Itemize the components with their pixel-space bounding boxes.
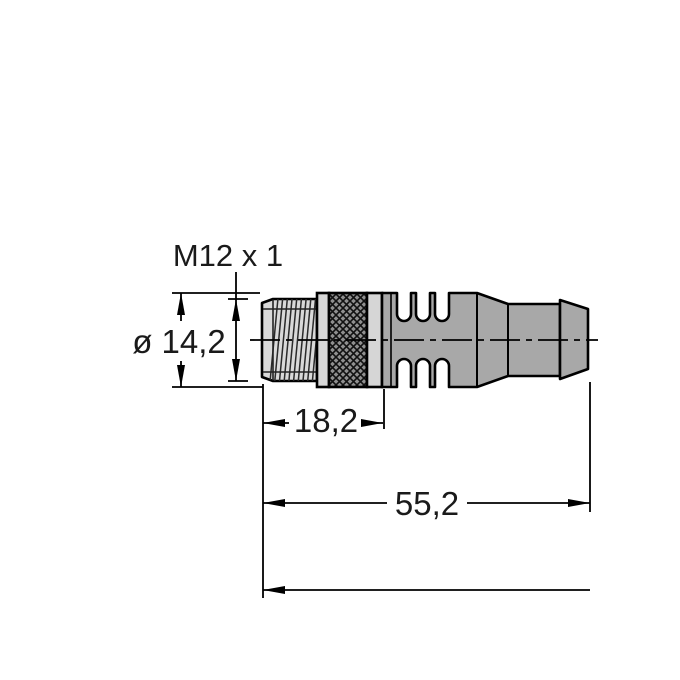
body-length-label: 55,2 (395, 485, 459, 522)
dia-arrow-up (177, 293, 185, 315)
thread-arrow-up (232, 299, 240, 321)
technical-drawing-page: M12 x 1 ø 14,2 18,2 55,2 (0, 0, 680, 680)
thread-length-label: 18,2 (294, 402, 358, 439)
len55-arrow-left (263, 499, 285, 507)
cable-arrow-left (263, 586, 285, 594)
len18-arrow-left (263, 419, 285, 427)
len18-arrow-right (361, 419, 383, 427)
connector-dimension-drawing: M12 x 1 ø 14,2 18,2 55,2 (0, 0, 680, 680)
diameter-label: ø 14,2 (132, 323, 226, 360)
thread-spec-label: M12 x 1 (173, 238, 283, 273)
len55-arrow-right (568, 499, 590, 507)
thread-arrow-down (232, 359, 240, 381)
dia-arrow-down (177, 365, 185, 387)
